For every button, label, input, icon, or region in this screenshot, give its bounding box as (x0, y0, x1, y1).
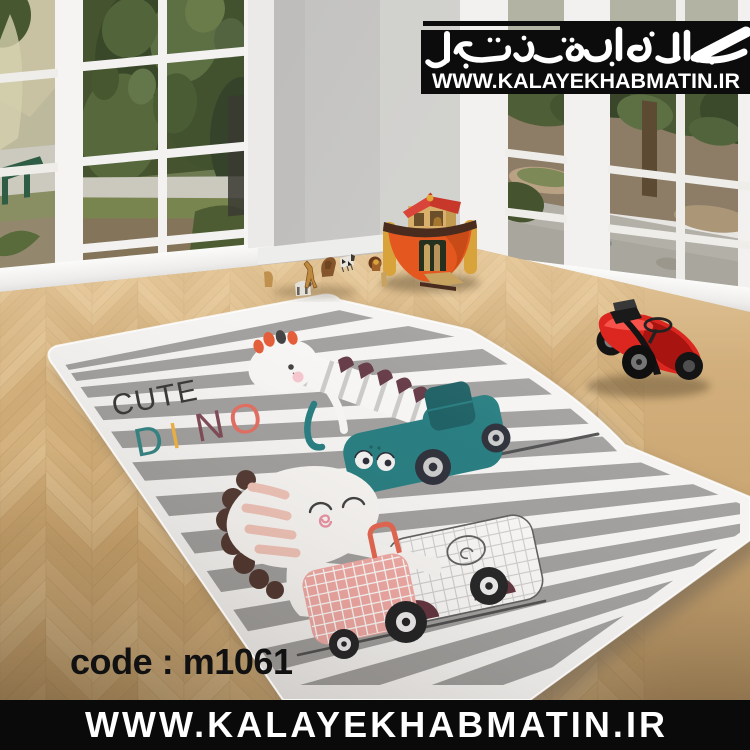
svg-text:code : m1061: code : m1061 (70, 641, 293, 682)
svg-text:WWW.KALAYEKHABMATIN.IR: WWW.KALAYEKHABMATIN.IR (85, 704, 665, 745)
svg-text:WWW.KALAYEKHABMATIN.IR: WWW.KALAYEKHABMATIN.IR (432, 69, 740, 93)
